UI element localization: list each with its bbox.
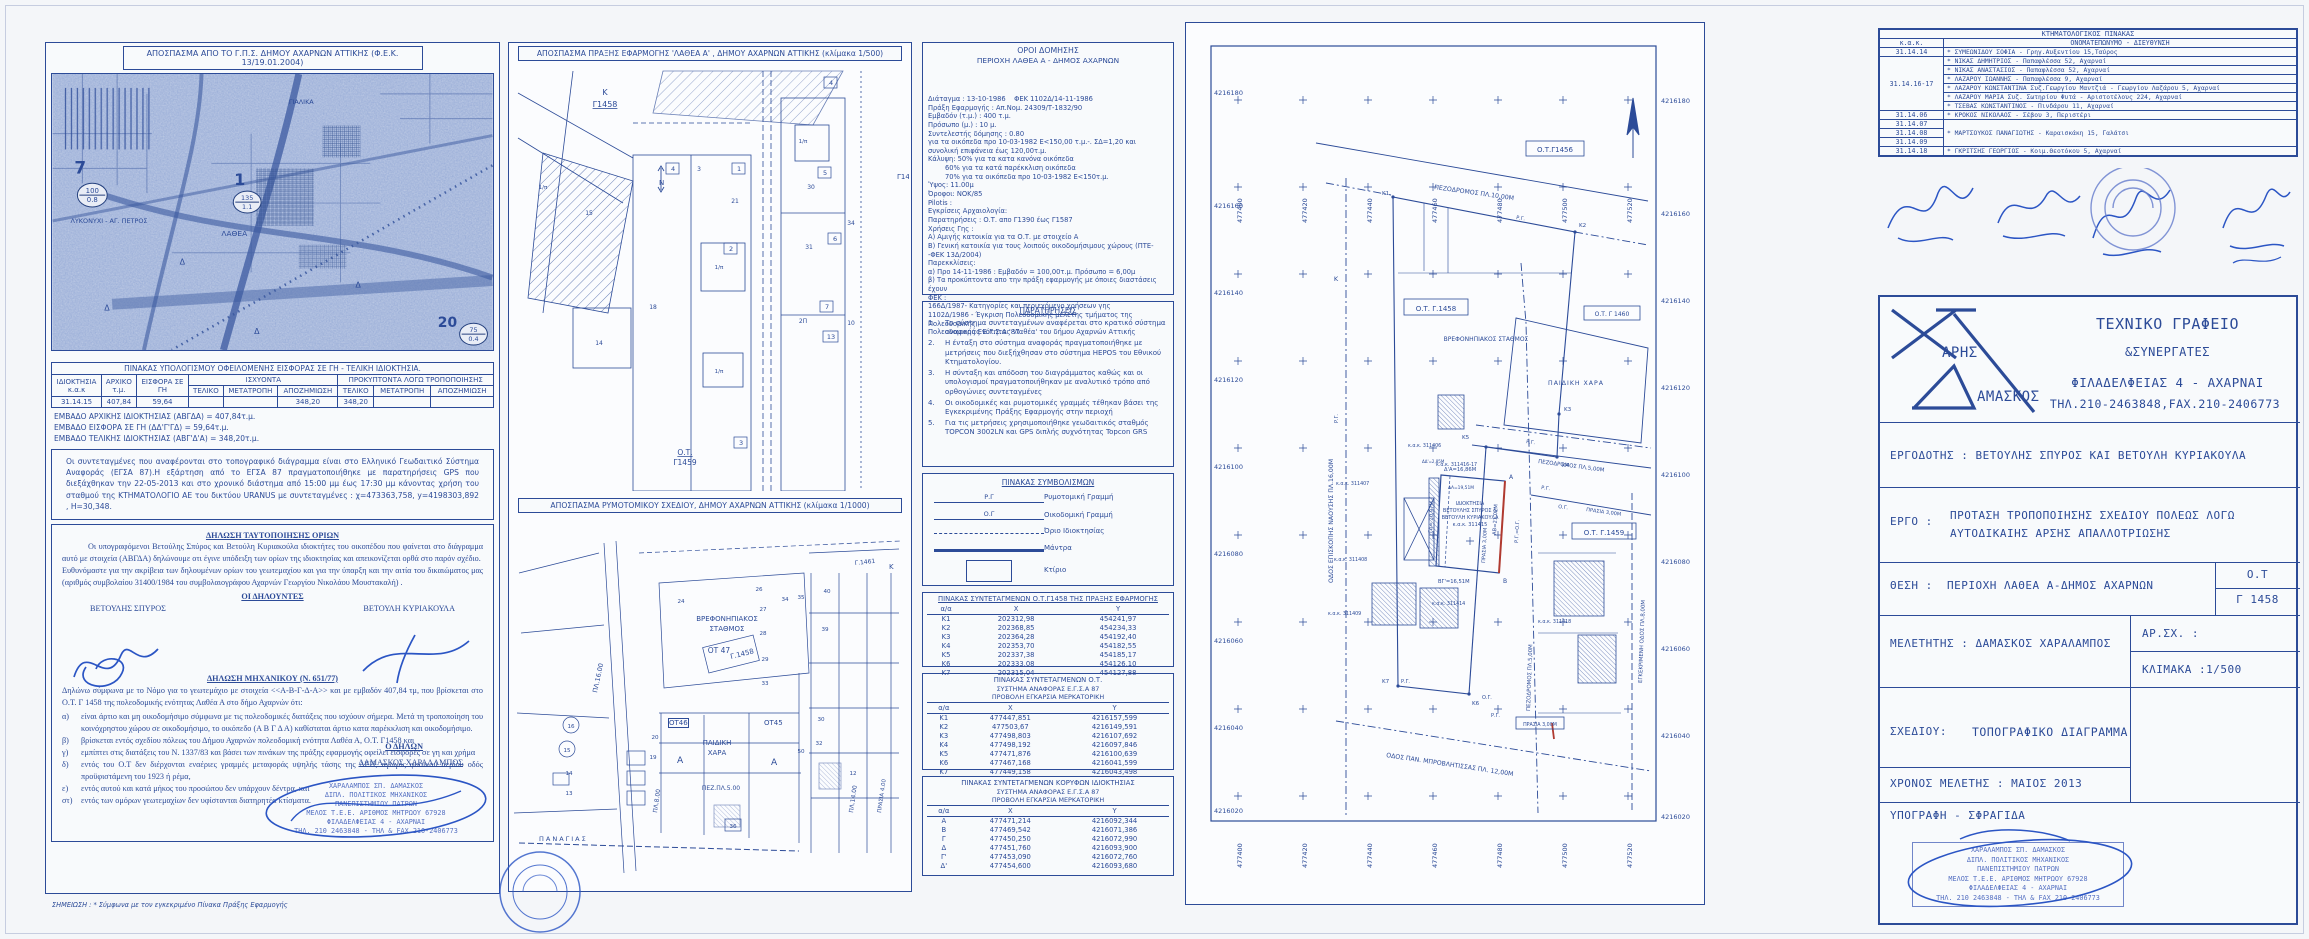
ktim-row: 31.14.06* ΚΡΟΚΟΣ ΝΙΚΟΛΑΟΣ - Σέβου 3, Περ… <box>1880 111 2297 120</box>
oroi-line: Διάταγμα : 13-10-1986 ΦΕΚ 1102Δ/14-11-19… <box>928 95 1168 104</box>
d2-paidiki2: ΧΑΡΑ <box>708 749 727 757</box>
map-name-lykonychi: ΛΥΚΟΝΥΧΙ - ΑΓ. ΠΕΤΡΟΣ <box>70 217 147 225</box>
project-line1: ΠΡΟΤΑΣΗ ΤΡΟΠΟΠΟΙΗΣΗΣ ΣΧΕΔΙΟΥ ΠΟΛΕΩΣ ΛΟΓΩ <box>1950 509 2235 522</box>
paratirisi-item: 5.Για τις μετρήσεις χρησιμοποιήθηκε γεωδ… <box>928 419 1168 437</box>
map-label: 4 <box>829 79 833 87</box>
street-brovl: ΟΔΟΣ ΠΑΝ. ΜΠΡΟΒΛΗΤΙΣΣΑΣ ΠΛ. 12,00Μ <box>1386 752 1514 778</box>
oroi-line: Εγκρίσεις Αρχαιολογία: <box>928 207 1168 216</box>
d1-ot: Ο.Τ. <box>677 448 692 457</box>
svg-text:Δ: Δ <box>254 327 260 336</box>
drawing-type: ΤΟΠΟΓΡΑΦΙΚΟ ΔΙΑΓΡΑΜΜΑ <box>1972 725 2128 739</box>
map-label: 1/π <box>715 369 724 375</box>
client-row: ΕΡΓΟΔΟΤΗΣ : ΒΕΤΟΥΛΗΣ ΣΠΥΡΟΣ ΚΑΙ ΒΕΤΟΥΛΗ … <box>1890 449 2246 462</box>
map-label: κ.α.κ. 311414 <box>1432 601 1465 607</box>
praxis-title: ΑΠΟΣΠΑΣΜΑ ΠΡΑΞΗΣ ΕΦΑΡΜΟΓΗΣ 'ΛΑΘΕΑ Α' , Δ… <box>518 46 902 61</box>
symbol-boundary-line <box>934 533 1044 534</box>
rg-label: Ρ.Γ. <box>1541 485 1551 492</box>
d1-g1459: Γ1459 <box>673 458 696 467</box>
symbol-boundary-label: Όριο Ιδιοκτησίας <box>1044 527 1162 536</box>
map-label: 4216120 <box>1214 376 1243 384</box>
rymotomiko-drawing: ΒΡΕΦΟΝΗΠΙΑΚΟΣ ΣΤΑΘΜΟΣ ΟΤ 47 Γ.1458 ΠΑΙΔΙ… <box>509 513 905 873</box>
map-label: 30 <box>807 184 815 191</box>
ot1460-label: Ο.Τ. Γ 1460 <box>1595 311 1630 318</box>
coord-row: Γ'477453,0904216072,760 <box>927 853 1169 862</box>
symbol-building-glyph <box>966 560 1012 582</box>
oroi-line: Ύψος: 11.00μ <box>928 181 1168 190</box>
coord-row: Κ1202312,98454241,97 <box>927 614 1169 623</box>
map-label: 4216040 <box>1661 732 1690 740</box>
map-label: κ.α.κ. 311406 <box>1408 443 1441 449</box>
og-label: Ο.Γ. <box>1558 504 1569 511</box>
d2-parcel-numbers: 2426272829333435403930322019161514131236… <box>563 587 856 830</box>
d2-vref2: ΣΤΑΘΜΟΣ <box>710 625 745 633</box>
topographic-drawing-sheet: ΑΠΟΣΠΑΣΜΑ ΑΠΟ ΤΟ Γ.Π.Σ. ΔΗΜΟΥ ΑΧΑΡΝΩΝ ΑΤ… <box>0 0 2309 939</box>
map-label: 5 <box>823 169 827 177</box>
d2-g1461: Γ.1461 <box>854 558 875 567</box>
map-label: 4216160 <box>1661 210 1690 218</box>
vertex-labels: Κ1Κ2Κ3Κ4Κ5Κ6Κ7 <box>1382 191 1586 707</box>
map-zone-20: 20 <box>438 315 457 331</box>
point-b: Β <box>1503 578 1507 585</box>
area-line: ΕΜΒΑΔΟ ΕΙΣΦΟΡΑ ΣΕ ΓΗ (ΔΔ'Γ'ΓΔ) = 59,64τ.… <box>54 423 491 434</box>
panel-site-plan: 4774004774204774404774604774804775004775… <box>1185 22 1705 905</box>
svg-text:0.8: 0.8 <box>87 196 98 204</box>
contribution-row: 31.14.15407,8459,64 348,20 348,20 <box>52 397 494 408</box>
symbol-wall-line <box>934 549 1044 552</box>
study-date: ΧΡΟΝΟΣ ΜΕΛΕΤΗΣ : ΜΑΙΟΣ 2013 <box>1890 777 2082 790</box>
paratirisi-item: 2.Η ένταξη στο σύστημα αναφοράς πραγματο… <box>928 339 1168 367</box>
coord-row: Κ2477503,674216149,591 <box>927 723 1169 732</box>
paratirisi-item: 1.Το σύστημα συντεταγμένων αναφέρεται στ… <box>928 319 1168 337</box>
d2-k: Κ <box>889 563 894 571</box>
map-label: 4216180 <box>1214 89 1243 97</box>
rg-label: Ρ.Γ. <box>1334 414 1340 423</box>
map-label: 4216060 <box>1214 637 1243 645</box>
oroi-line: Χρήσεις Γης : <box>928 225 1168 234</box>
oroi-domisis: ΟΡΟΙ ΔΟΜΗΣΗΣ ΠΕΡΙΟΧΗ ΛΑΘΕΑ Α - ΔΗΜΟΣ ΑΧΑ… <box>922 42 1174 295</box>
symbols-legend: ΠΙΝΑΚΑΣ ΣΥΜΒΟΛΙΣΜΩΝ Ρ.Γ Ρυμοτομική Γραμμ… <box>922 473 1174 586</box>
dim-bg: ΒΓ'=16,51Μ <box>1438 579 1470 585</box>
ktim-row: 31.14.14* ΣΥΜΕΩΝΙΔΟΥ ΣΟΦΙΑ - Γρηγ.Αυξεντ… <box>1880 48 2297 57</box>
decl-title: ΔΗΛΩΣΗ ΤΑΥΤΟΠΟΙΗΣΗΣ ΟΡΙΩΝ <box>62 530 483 542</box>
map-label: 7 <box>825 303 829 311</box>
praxis-drawing: Κ Γ1458 Ο.Τ. Γ1459 Ν Γ14 4123456713 3213… <box>513 63 909 491</box>
d2-ot46: ΟΤ46 <box>669 719 688 727</box>
area-summary: ΕΜΒΑΔΟ ΑΡΧΙΚΗΣ ΙΔΙΟΚΤΗΣΙΑΣ (ΑΒΓΔΑ) = 407… <box>54 412 491 445</box>
map-label: 19 <box>649 755 657 761</box>
eng-who: Ο ΔΗΛΩΝ <box>385 741 423 753</box>
map-label: 30 <box>817 717 825 723</box>
map-label: 477500 <box>1561 843 1569 868</box>
ktimatologikos-table: ΚΤΗΜΑΤΟΛΟΓΙΚΟΣ ΠΙΝΑΚΑΣ κ.α.κ.ΟΝΟΜΑΤΕΠΩΝΥ… <box>1879 29 2297 156</box>
eng-name: ΔΑΜΑΣΚΟΣ ΧΑΡΑΛΑΜΠΟΣ <box>359 757 463 769</box>
oroi-line: Παρεκκλίσεις: <box>928 259 1168 268</box>
coord-row: Β477469,5424216071,386 <box>927 826 1169 835</box>
d1-g14: Γ14 <box>897 173 909 181</box>
paratiriseis: ΠΑΡΑΤΗΡΗΣΕΙΣ 1.Το σύστημα συντεταγμένων … <box>922 301 1174 467</box>
t2-title2: ΣΥΣΤΗΜΑ ΑΝΑΦΟΡΑΣ Ε.Γ.Σ.Α 87 <box>927 685 1169 693</box>
symbol-og-line: Ο.Γ <box>934 510 1044 520</box>
t1-title: ΠΙΝΑΚΑΣ ΣΥΝΤΕΤΑΓΜΕΝΩΝ Ο.Τ.Γ1458 ΤΗΣ ΠΡΑΞ… <box>927 595 1169 604</box>
panel-terms: ΟΡΟΙ ΔΟΜΗΣΗΣ ΠΕΡΙΟΧΗ ΛΑΘΕΑ Α - ΔΗΜΟΣ ΑΧΑ… <box>922 42 1174 882</box>
oroi-line: Όροφοι: ΝΟΚ/85 <box>928 190 1168 199</box>
map-label: 1/π <box>715 265 724 271</box>
oroi-line: Συντελεστής δόμησης : 0.80 <box>928 130 1168 139</box>
oroi-line: Παρατηρήσεις : Ο.Τ. απο Γ1390 έως Γ1587 <box>928 216 1168 225</box>
d2-pl16: ΠΛ.16.00 <box>591 662 605 693</box>
map-label: 32 <box>815 741 822 747</box>
svg-text:100: 100 <box>86 187 99 195</box>
map-label: 4 <box>671 165 675 173</box>
og-label: Ο.Γ. <box>1482 695 1492 701</box>
map-label: 477520 <box>1626 843 1634 868</box>
map-label: 4216100 <box>1661 471 1690 479</box>
map-label: Κ3 <box>1564 407 1572 413</box>
area-vrefonipiakos: ΒΡΕΦΟΝΗΠΙΑΚΟΣ ΣΤΑΘΜΟΣ <box>1444 336 1529 343</box>
svg-text:1.1: 1.1 <box>242 203 252 211</box>
x-tick-labels-top: 4774004774204774404774604774804775004775… <box>1236 198 1634 223</box>
street-egkekrimeni: ΕΓΚΕΚΡΙΜΕΝΗ ΟΔΟΣ ΠΛ.8,00Μ <box>1638 600 1647 683</box>
svg-text:135: 135 <box>241 194 253 202</box>
t3-title1: ΠΙΝΑΚΑΣ ΣΥΝΤΕΤΑΓΜΕΝΩΝ ΚΟΡΥΦΩΝ ΙΔΙΟΚΤΗΣΙΑ… <box>927 779 1169 788</box>
coords-table-praxis: ΠΙΝΑΚΑΣ ΣΥΝΤΕΤΑΓΜΕΝΩΝ Ο.Τ.Γ1458 ΤΗΣ ΠΡΑΞ… <box>922 592 1174 667</box>
map-label: 477420 <box>1301 198 1309 223</box>
map-label: 3 <box>739 439 743 447</box>
area-line: ΕΜΒΑΔΟ ΑΡΧΙΚΗΣ ΙΔΙΟΚΤΗΣΙΑΣ (ΑΒΓΔΑ) = 407… <box>54 412 491 423</box>
coord-row: Κ5477471,8764216100,639 <box>927 750 1169 759</box>
prop-line4: κ.α.κ. 311415 <box>1453 522 1488 528</box>
map-label: 14 <box>565 771 573 777</box>
paratirisi-item: 3.Η σύνταξη και απόδοση του διαγράμματος… <box>928 369 1168 397</box>
map-label: 36 <box>729 824 737 830</box>
map-label: 4216040 <box>1214 724 1243 732</box>
drawing-type-label: ΣΧΕΔΙΟΥ: <box>1890 725 1947 738</box>
map-label: 16 <box>567 724 575 730</box>
map-label: 40 <box>823 589 831 595</box>
area-line: ΕΜΒΑΔΟ ΤΕΛΙΚΗΣ ΙΔΙΟΚΤΗΣΙΑΣ (ΑΒΓ'Δ'Α) = 3… <box>54 434 491 445</box>
map-label: κ.α.κ. 311408 <box>1334 557 1367 563</box>
point-k: Κ <box>1334 275 1339 283</box>
ot1456-label: Ο.Τ.Γ1456 <box>1537 146 1573 154</box>
prop-line2: ΒΕΤΟΥΛΗΣ ΣΠΥΡΟΣ & <box>1443 508 1497 514</box>
d2-pez5: ΠΕΖ.ΠΛ.5.00 <box>702 785 740 792</box>
coord-row: Κ2202368,85454234,33 <box>927 624 1169 633</box>
coord-row: Κ1477447,8514216157,599 <box>927 713 1169 722</box>
owner-signatures <box>1878 168 2298 292</box>
map-label: 3 <box>697 166 701 173</box>
map-label: 477480 <box>1496 198 1504 223</box>
d2-ot45: ΟΤ45 <box>764 719 783 727</box>
map-label: Κ4 <box>1562 463 1570 469</box>
office-name: ΤΕΧΝΙΚΟ ΓΡΑΦΕΙΟ <box>2040 315 2295 333</box>
street-pez5v: ΠΕΖΟΔΡΟΜΟΣ ΠΛ.5,00Μ <box>1526 644 1534 711</box>
map-label: 477520 <box>1626 198 1634 223</box>
coord-row: Α477471,2144216092,344 <box>927 816 1169 825</box>
d2-pl14b: ΠΛ.14.00 <box>848 785 859 814</box>
oroi-line: β) Τα προκύπτοντα απο την πράξη εφαρμογή… <box>928 276 1168 293</box>
d1-boxed-numbers: 4123456713 <box>671 79 837 447</box>
x-tick-labels-bottom: 4774004774204774404774604774804775004775… <box>1236 843 1634 868</box>
oroi-line: 70% για τα οικόπεδα προ 10-03-1982 Ε<150… <box>928 173 1168 182</box>
map-label: Κ5 <box>1462 435 1470 441</box>
map-label: 1 <box>737 165 741 173</box>
decl-who: ΟΙ ΔΗΛΟΥΝΤΕΣ <box>62 591 483 603</box>
coord-row: Κ6202333,08454126,10 <box>927 660 1169 669</box>
project-line2: ΑΥΤΟΔΙΚΑΙΗΣ ΑΡΣΗΣ ΑΠΑΛΛΟΤΡΙΩΣΗΣ <box>1950 527 2171 540</box>
map-label: 4216080 <box>1661 558 1690 566</box>
oroi-line: Πρόσωπο (μ.) : 10 μ. <box>928 121 1168 130</box>
symbols-title: ΠΙΝΑΚΑΣ ΣΥΜΒΟΛΙΣΜΩΝ <box>928 478 1168 488</box>
declarant-names: ΒΕΤΟΥΛΗΣ ΣΠΥΡΟΣΒΕΤΟΥΛΗ ΚΥΡΙΑΚΟΥΛΑ <box>62 603 483 615</box>
title-block: ΑΡΗΣ ΑΜΑΣΚΟΣ ΤΕΧΝΙΚΟ ΓΡΑΦΕΙΟ &ΣΥΝΕΡΓΑΤΕΣ… <box>1878 295 2298 925</box>
office-address: ΦΙΛΑΔΕΛΦΕΙΑΣ 4 - ΑΧΑΡΝΑΙ <box>2040 375 2295 390</box>
map-label: 4216060 <box>1661 645 1690 653</box>
coord-row: Δ477451,7604216093,900 <box>927 844 1169 853</box>
map-label: 477460 <box>1431 198 1439 223</box>
d2-ot47: ΟΤ 47 <box>708 646 731 655</box>
map-label: 1/π <box>799 139 808 145</box>
map-label: 12 <box>849 771 856 777</box>
prop-line3: ΒΕΤΟΥΛΗ ΚΥΡΙΑΚΟΥΛΑ <box>1442 515 1499 521</box>
map-label: 2 <box>729 245 733 253</box>
point-a: Α <box>1509 474 1514 481</box>
d1-k: Κ <box>602 88 608 97</box>
dim-da: ΔΑ=19,51Μ <box>1448 485 1474 491</box>
coord-row: Δ'477454,6004216093,680 <box>927 862 1169 871</box>
oroi-title2: ΠΕΡΙΟΧΗ ΛΑΘΕΑ Α - ΔΗΜΟΣ ΑΧΑΡΝΩΝ <box>928 56 1168 66</box>
map-label: 28 <box>759 631 767 637</box>
ktim-row: 31.14.16-17* ΝΙΚΑΣ ΔΗΜΗΤΡΙΟΣ - Παπαφλέσσ… <box>1880 57 2297 66</box>
t2-title3: ΠΡΟΒΟΛΗ ΕΓΚΑΡΣΙΑ ΜΕΡΚΑΤΟΡΙΚΗ <box>927 693 1169 702</box>
street-episkopis: ΟΔΟΣ ΕΠΙΣΚΟΠΗΣ ΝΑΟΥΣΗΣ ΠΛ.16,00Μ <box>1328 459 1335 583</box>
d1-g1458: Γ1458 <box>593 100 618 109</box>
signature-left <box>66 633 196 691</box>
map-label: 21 <box>731 198 739 205</box>
map-label: κ.α.κ. 311416-17 <box>1436 462 1477 468</box>
contribution-table: ΠΙΝΑΚΑΣ ΥΠΟΛΟΓΙΣΜΟΥ ΟΦΕΙΛΟΜΕΝΗΣ ΕΙΣΦΟΡΑΣ… <box>51 362 494 408</box>
map-label: 10 <box>847 320 855 327</box>
project-label: ΕΡΓΟ : <box>1890 515 1933 528</box>
rymotomiko-title: ΑΠΟΣΠΑΣΜΑ ΡΥΜΟΤΟΜΙΚΟΥ ΣΧΕΔΙΟΥ, ΔΗΜΟΥ ΑΧΑ… <box>518 498 902 513</box>
ot-value: Γ 1458 <box>2215 593 2300 606</box>
prasia-vertical: ΠΡΑΣΙΑ 3,00Μ <box>1481 528 1489 564</box>
map-label: 13 <box>827 333 835 341</box>
coords-table-vertices: ΠΙΝΑΚΑΣ ΣΥΝΤΕΤΑΓΜΕΝΩΝ ΚΟΡΥΦΩΝ ΙΔΙΟΚΤΗΣΙΑ… <box>922 776 1174 876</box>
coord-row: Κ3477498,8034216107,692 <box>927 732 1169 741</box>
d2-panagias: ΠΑΝΑΓΙΑΣ <box>539 835 588 843</box>
map-label: 477440 <box>1366 843 1374 868</box>
map-zone-1: 1 <box>234 170 245 189</box>
symbol-rg-line: Ρ.Γ <box>934 493 1044 503</box>
declarations: ΔΗΛΩΣΗ ΤΑΥΤΟΠΟΙΗΣΗΣ ΟΡΙΩΝ Οι υπογραφόμεν… <box>51 524 494 842</box>
round-stamp-panel2 <box>493 848 588 936</box>
decl-p1: Οι υπογραφόμενοι Βετούλης Σπύρος και Βετ… <box>62 541 483 565</box>
dim-ab: ΑΒ=21,02Μ <box>1492 504 1500 535</box>
map-label: 15 <box>563 748 571 754</box>
map-label: 477440 <box>1366 198 1374 223</box>
map-label: 2Π <box>799 318 807 325</box>
svg-text:75: 75 <box>469 326 477 334</box>
map-label: 29 <box>761 657 769 663</box>
symbol-building-label: Κτίριο <box>1044 566 1162 575</box>
oroi-line: Pilotis : <box>928 199 1168 208</box>
map-label: 477460 <box>1431 843 1439 868</box>
oroi-line: για τα οικόπεδα προ 10-03-1982 Ε<150,00 … <box>928 138 1168 147</box>
map-label: κ.α.κ. 311407 <box>1336 481 1369 487</box>
oroi-line: Α) Αμιγής κατοικία για τα Ο.Τ. με στοιχε… <box>928 233 1168 242</box>
map-label: 31 <box>805 244 813 251</box>
map-name-gialika: ΓΙΑΛΙΚΑ <box>289 98 314 106</box>
svg-text:Δ: Δ <box>104 303 110 312</box>
paratirisi-item: 4.Οι οικοδομικές και ρυμοτομικές γραμμές… <box>928 399 1168 417</box>
d2-a1: Α <box>677 756 684 766</box>
map-label: κ.α.κ. 311409 <box>1328 611 1361 617</box>
y-tick-labels-left: 4216180421616042161404216120421610042160… <box>1214 89 1243 815</box>
map-label: Κ1 <box>1382 191 1390 197</box>
site-plan: 4774004774204774404774604774804775004775… <box>1186 23 1703 903</box>
footnote: ΣΗΜΕΙΩΣΗ : * Σύμφωνα με τον εγκεκριμένο … <box>52 901 288 909</box>
oroi-line: Β) Γενική κατοικία για τους λοιπούς οικο… <box>928 242 1168 251</box>
ktimatologikos-table-wrap: ΚΤΗΜΑΤΟΛΟΓΙΚΟΣ ΠΙΝΑΚΑΣ κ.α.κ.ΟΝΟΜΑΤΕΠΩΝΥ… <box>1878 28 2298 157</box>
oroi-line: -ΦΕΚ 13Δ/2004) <box>928 251 1168 260</box>
d2-vref1: ΒΡΕΦΟΝΗΠΙΑΚΟΣ <box>696 615 758 623</box>
coord-row: Κ6477467,1684216041,599 <box>927 759 1169 768</box>
surveyor-row: ΜΕΛΕΤΗΤΗΣ : ΔΑΜΑΣΚΟΣ ΧΑΡΑΛΑΜΠΟΣ <box>1890 637 2111 650</box>
map-label: 4216160 <box>1214 202 1243 210</box>
red-boundary-ab <box>1499 481 1505 573</box>
d2-paidiki1: ΠΑΙΔΙΚΗ <box>703 739 732 747</box>
signature-right <box>357 631 477 686</box>
titleblock-signature <box>1900 825 2140 920</box>
map-label: 1/π <box>539 185 548 191</box>
map-label: 477420 <box>1301 843 1309 868</box>
map-label: Κ6 <box>1472 701 1480 707</box>
svg-text:Δ: Δ <box>355 280 361 289</box>
coord-row: Κ4202353,70454182,55 <box>927 642 1169 651</box>
map-label: 477480 <box>1496 843 1504 868</box>
map-label: 34 <box>781 597 789 603</box>
north-arrow <box>1627 98 1639 158</box>
map-label: 4216140 <box>1661 297 1690 305</box>
map-label: 39 <box>821 627 829 633</box>
map-label: 4216080 <box>1214 550 1243 558</box>
coord-row: Κ3202364,28454192,40 <box>927 633 1169 642</box>
map-label: Κ2 <box>1579 223 1586 229</box>
drawing-no-label: ΑΡ.ΣΧ. : <box>2142 627 2199 640</box>
symbol-og-label: Οικοδομική Γραμμή <box>1044 511 1162 520</box>
map-label: 24 <box>677 599 685 605</box>
map-label: κ.α.κ. 311418 <box>1538 619 1571 625</box>
map-label: 15 <box>585 210 593 217</box>
symbol-wall-label: Μάντρα <box>1044 544 1162 553</box>
gps-extract-title: ΑΠΟΣΠΑΣΜΑ ΑΠΟ ΤΟ Γ.Π.Σ. ΔΗΜΟΥ ΑΧΑΡΝΩΝ ΑΤ… <box>123 46 423 70</box>
map-zone-7: 7 <box>74 157 86 177</box>
coords-note: Οι συντεταγμένες που αναφέρονται στο τοπ… <box>51 449 494 520</box>
map-label: 477500 <box>1561 198 1569 223</box>
map-label: 20 <box>651 735 659 741</box>
scale-label: ΚΛΙΜΑΚΑ :1/500 <box>2142 663 2242 676</box>
coord-row: Γ477450,2504216072,990 <box>927 835 1169 844</box>
map-label: 35 <box>797 595 805 601</box>
map-label: 6 <box>833 235 837 243</box>
map-label: 4216180 <box>1661 97 1690 105</box>
svg-text:0.4: 0.4 <box>468 335 478 343</box>
map-label: 14 <box>595 340 603 347</box>
map-label: 477400 <box>1236 843 1244 868</box>
stamp-signature-ellipse <box>261 771 491 841</box>
area-paidiki: ΠΑΙΔΙΚΗ ΧΑΡΑ <box>1548 380 1604 387</box>
oroi-line: Πράξη Εφαρμογής : Απ.Νομ. 24309/Τ-1832/9… <box>928 104 1168 113</box>
coord-row: Κ4477498,1924216097,846 <box>927 741 1169 750</box>
eng-decl-item: α)είναι άρτιο και μη οικοδομήσιμο σύμφων… <box>62 711 483 735</box>
decl-p2: Ευθυνόμαστε για την ακρίβεια των δηλουμέ… <box>62 565 483 589</box>
ot1458-label: Ο.Τ. Γ.1458 <box>1416 305 1456 313</box>
gps-map: 7 1 20 ΛΑΘΕΑ ΛΥΚΟΝΥΧΙ - ΑΓ. ΠΕΤΡΟΣ ΓΙΑΛΙ… <box>51 73 494 351</box>
t3-title2: ΣΥΣΤΗΜΑ ΑΝΑΦΟΡΑΣ Ε.Γ.Σ.Α 87 <box>927 788 1169 796</box>
coord-row: Κ5202337,38454185,17 <box>927 651 1169 660</box>
t3-title3: ΠΡΟΒΟΛΗ ΕΓΚΑΡΣΙΑ ΜΕΡΚΑΤΟΡΙΚΗ <box>927 796 1169 805</box>
map-label: 13 <box>565 791 573 797</box>
d1-n: Ν <box>659 179 664 187</box>
logo-aris: ΑΡΗΣ <box>1942 345 1978 361</box>
rg-label: Ρ.Γ. <box>1526 439 1536 446</box>
map-label: 4216120 <box>1661 384 1690 392</box>
prasia-horizontal: ΠΡΑΣΙΑ 3,00Μ <box>1586 507 1622 518</box>
y-tick-labels-right: 4216180421616042161404216120421610042160… <box>1661 97 1690 821</box>
d2-prasia4: ΠΡΑΣΙΑ 4.00 <box>877 778 888 813</box>
oroi-line: 60% για τα κατά παρέκκλιση οικόπεδα <box>928 164 1168 173</box>
oroi-line: Κάλυψη: 50% για τα κατα κανόνα οικόπεδα <box>928 155 1168 164</box>
d2-g1458: Γ.1458 <box>730 647 755 661</box>
office-partners: &ΣΥΝΕΡΓΑΤΕΣ <box>2040 345 2295 359</box>
office-phone: ΤΗΛ.210-2463848,FAX.210-2406773 <box>2030 397 2300 411</box>
panel-gps-extract: ΑΠΟΣΠΑΣΜΑ ΑΠΟ ΤΟ Γ.Π.Σ. ΔΗΜΟΥ ΑΧΑΡΝΩΝ ΑΤ… <box>45 42 500 894</box>
prasia-bottom: ΠΡΑΣΙΑ 3,00Μ <box>1523 722 1557 728</box>
map-label: 18 <box>649 304 657 311</box>
d2-a2: Α <box>771 758 778 768</box>
ktim-row: 31.14.07* ΜΑΡΤΣΟΥΚΟΣ ΠΑΝΑΓΙΩΤΗΣ - Καραισ… <box>1880 120 2297 129</box>
svg-text:Δ: Δ <box>180 258 186 267</box>
oroi-line: α) Προ 14-11-1986 : Εμβαδόν = 100,00τ.μ.… <box>928 268 1168 277</box>
rg-og-label: Ρ.Γ.=Ο.Γ. <box>1514 519 1521 543</box>
map-label: 4216100 <box>1214 463 1243 471</box>
ot1459-label: Ο.Τ. Γ.1459 <box>1584 529 1624 537</box>
symbol-rg-label: Ρυμοτομική Γραμμή <box>1044 493 1162 502</box>
signature-stamp-label: ΥΠΟΓΡΑΦΗ - ΣΦΡΑΓΙΔΑ <box>1890 809 2025 822</box>
rg-label: Ρ.Γ. <box>1491 713 1500 719</box>
map-label: 26 <box>755 587 763 593</box>
ktim-row: 31.14.18* ΓΚΡΙΤΣΗΣ ΓΕΩΡΓΙΟΣ - Κοιμ.Θεοτό… <box>1880 147 2297 156</box>
map-label: 33 <box>761 681 769 687</box>
oroi-title1: ΟΡΟΙ ΔΟΜΗΣΗΣ <box>928 46 1168 56</box>
map-label: 50 <box>797 749 805 755</box>
map-label: 27 <box>759 607 767 613</box>
map-label: 34 <box>847 220 855 227</box>
ot-label: Ο.Τ <box>2215 568 2300 581</box>
oroi-line: συνολική επιφάνεια έως 120,00τ.μ. <box>928 147 1168 156</box>
location-row: ΘΕΣΗ : ΠΕΡΙΟΧΗ ΛΑΘΕΑ Α-ΔΗΜΟΣ ΑΧΑΡΝΩΝ <box>1890 579 2154 592</box>
panel-cadastral-extracts: ΑΠΟΣΠΑΣΜΑ ΠΡΑΞΗΣ ΕΦΑΡΜΟΓΗΣ 'ΛΑΘΕΑ Α' , Δ… <box>508 42 912 892</box>
map-label: 4216020 <box>1214 807 1243 815</box>
prop-line1: ΙΔΙΟΚΤΗΣΙΑ <box>1456 501 1485 507</box>
street-pez10: ΠΕΖΟΔΡΟΜΟΣ ΠΛ.10,00Μ <box>1434 184 1515 202</box>
map-label: 4216140 <box>1214 289 1243 297</box>
rg-label: Ρ.Γ. <box>1401 679 1410 685</box>
coords-table-egsa: ΠΙΝΑΚΑΣ ΣΥΝΤΕΤΑΓΜΕΝΩΝ Ο.Τ. ΣΥΣΤΗΜΑ ΑΝΑΦΟ… <box>922 673 1174 770</box>
map-name-lathea: ΛΑΘΕΑ <box>221 229 248 238</box>
map-label: 4216020 <box>1661 813 1690 821</box>
map-label: Κ7 <box>1382 679 1390 685</box>
